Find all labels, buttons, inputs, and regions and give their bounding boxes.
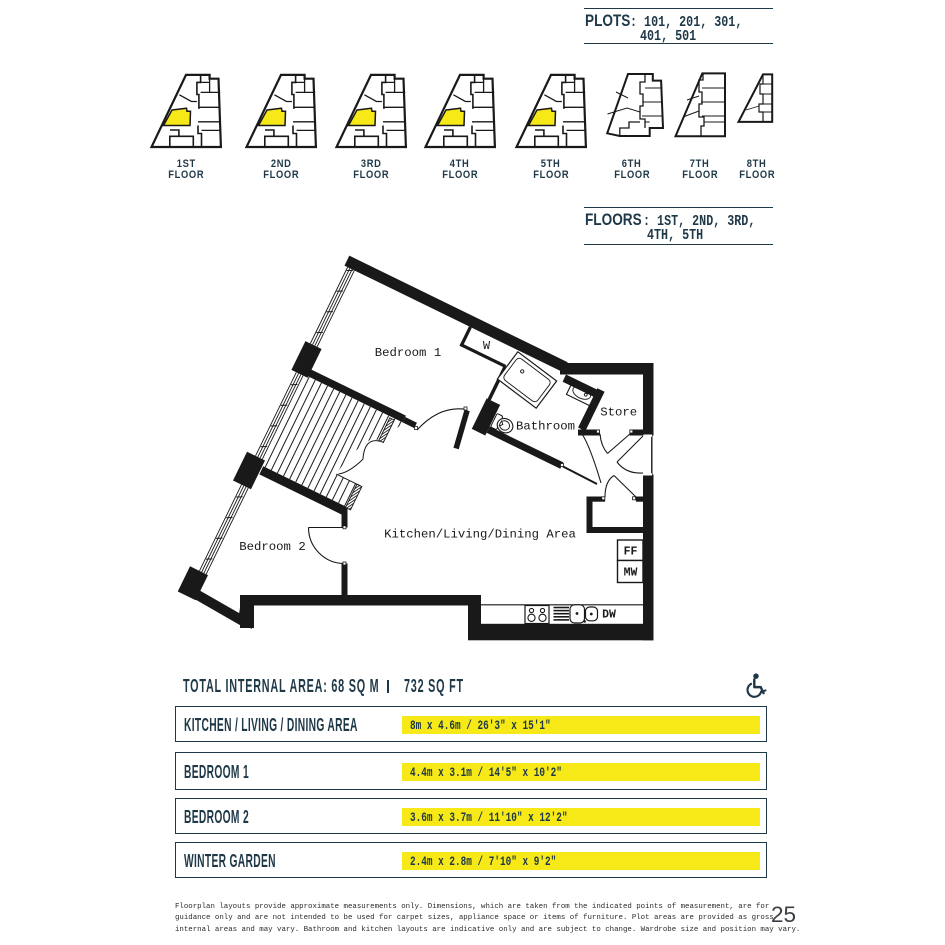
svg-text:MW: MW (624, 567, 638, 580)
svg-text:Bathroom: Bathroom (516, 420, 575, 434)
svg-text:DW: DW (602, 609, 616, 622)
svg-text:Kitchen/Living/Dining Area: Kitchen/Living/Dining Area (384, 528, 576, 542)
svg-text:W: W (483, 339, 491, 353)
svg-text:Store: Store (600, 406, 637, 420)
svg-text:Bedroom 2: Bedroom 2 (239, 540, 305, 554)
svg-text:Bedroom 1: Bedroom 1 (375, 346, 441, 360)
svg-text:FF: FF (624, 546, 638, 559)
